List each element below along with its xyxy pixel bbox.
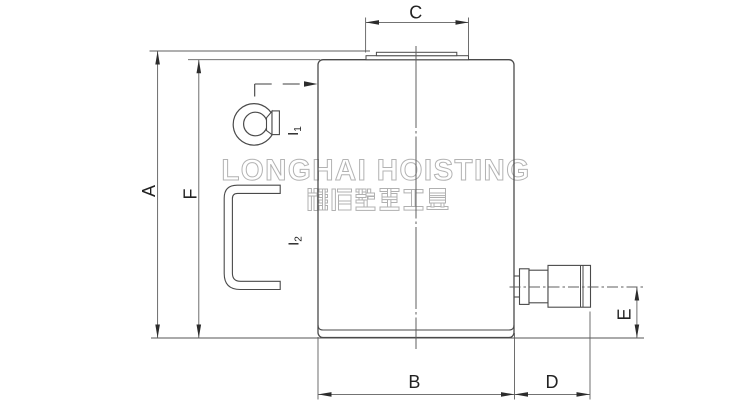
svg-text:B: B [408,372,420,392]
svg-text:C: C [409,3,422,23]
svg-text:E: E [615,308,635,320]
svg-text:F: F [181,189,201,200]
svg-text:A: A [139,185,159,197]
svg-text:LONGHAI HOISTING: LONGHAI HOISTING [221,154,530,187]
svg-text:D: D [546,372,559,392]
